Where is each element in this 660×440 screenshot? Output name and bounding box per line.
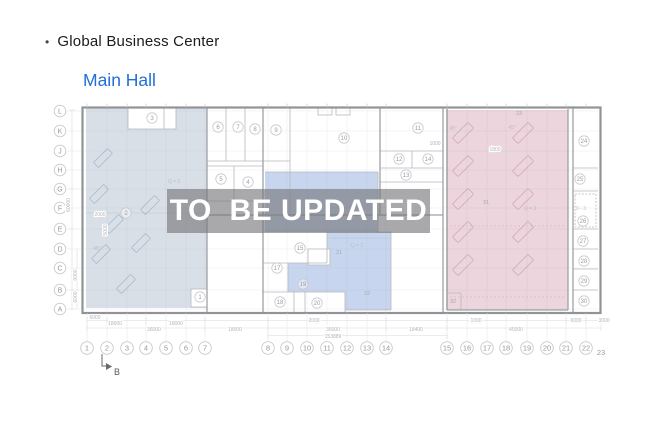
grid-col-label: 21 [562,344,570,353]
room-number: 28 [581,259,588,265]
dimension-label: 6000 [73,269,79,280]
room-number: 20 [314,301,321,307]
page: • Global Business Center Main Hall [0,0,660,440]
room-number: 13 [403,173,410,179]
grid-col-label: 18 [502,344,510,353]
room-number: 27 [580,239,587,245]
room-number: 15 [297,246,304,252]
grid-col-label: 6 [184,344,188,353]
grid-col-label: 12 [343,344,351,353]
room-number: 12 [396,157,403,163]
dimension-label: 6000 [570,318,581,324]
room-number: 30 [581,299,588,305]
dimension-label: 45000 [509,327,523,333]
grid-col-label: 10 [303,344,311,353]
grid-col-label: 16 [463,344,471,353]
grid-col-label: 1 [85,344,89,353]
section-marker-label: B [114,367,120,377]
grid-row-label: J [58,148,62,155]
zone-right-region[interactable] [447,110,568,310]
section-marker: B [102,354,120,377]
grid-col-label: 20 [543,344,551,353]
room-number: 17 [274,266,281,272]
grid-col-label: 19 [523,344,531,353]
grid-row-label: H [57,167,62,174]
dimension-label: 6000 [73,291,79,302]
grid-col-label: 4 [144,344,148,353]
grid-col-label: 11 [323,344,331,353]
room-number: 31 [483,200,489,206]
watermark-band: TO BE UPDATED [167,189,430,233]
room-number: 10 [341,136,348,142]
room-number: 29 [581,279,588,285]
dimension-label: 2000 [308,318,319,324]
room-number: 32 [450,299,456,305]
grid-row-label: E [58,226,63,233]
dimension-label: 18000 [108,321,122,327]
dimension-label: 18400 [409,327,423,333]
grid-row-label: D [57,246,62,253]
zone-label: 45° [93,246,101,252]
room-number: 18 [277,300,284,306]
dimension-label: 153889 [325,334,342,340]
zone-label: 0 - 3 [576,206,586,212]
room-number: 25 [577,177,584,183]
grid-col-label: 22 [582,344,590,353]
zone-label: Q = 3 [168,179,181,185]
room-number: 24 [581,139,588,145]
room-number: 19 [300,282,307,288]
zone-label: Q = 3 [351,243,364,249]
grid-col-label: 13 [363,344,371,353]
grid-col-label: 5 [164,344,168,353]
grid-row-label: K [58,128,63,135]
dimension-label: 60000 [66,198,72,212]
grid-col-label: 7 [203,344,207,353]
grid-row-label: L [58,108,62,115]
zone-label: 45° [449,126,457,132]
grid-row-label: F [58,205,62,212]
dimension-label: 1800 [489,147,500,153]
grid-col-label: 2 [105,344,109,353]
room-number: 21 [336,250,342,256]
zone-label: 45° [508,125,516,131]
grid-row-label: A [58,306,63,313]
dimension-label: 5000 [103,224,109,235]
room-number: 22 [364,291,370,297]
grid-row-label: B [58,287,63,294]
dimension-label: 6000 [89,315,100,321]
dimension-label: 2000 [94,212,105,218]
room-number: 11 [415,126,422,132]
dimension-label: 36000 [147,327,161,333]
grid-row-label: G [57,186,62,193]
grid-col-label: 17 [483,344,491,353]
dimension-label: 36000 [326,327,340,333]
grid-col-label: 14 [382,344,390,353]
room-number: 14 [425,157,432,163]
dimension-label: 3000 [598,318,609,324]
watermark-text: TO BE UPDATED [170,194,428,228]
dimension-label: 1000 [429,141,440,147]
grid-col-label: 3 [125,344,129,353]
room-number: 23 [516,111,522,117]
zone-label: Q = 3 [524,206,537,212]
dimension-label: 18000 [169,321,183,327]
grid-col-label: 15 [443,344,451,353]
grid-row-label: C [57,265,62,272]
grid-col-label: 9 [285,344,289,353]
room-number: 26 [580,219,587,225]
grid-col-label: 8 [266,344,270,353]
dimension-label: 18000 [228,327,242,333]
dimension-label: 1000 [470,318,481,324]
grid-col-label: 23 [597,348,605,357]
